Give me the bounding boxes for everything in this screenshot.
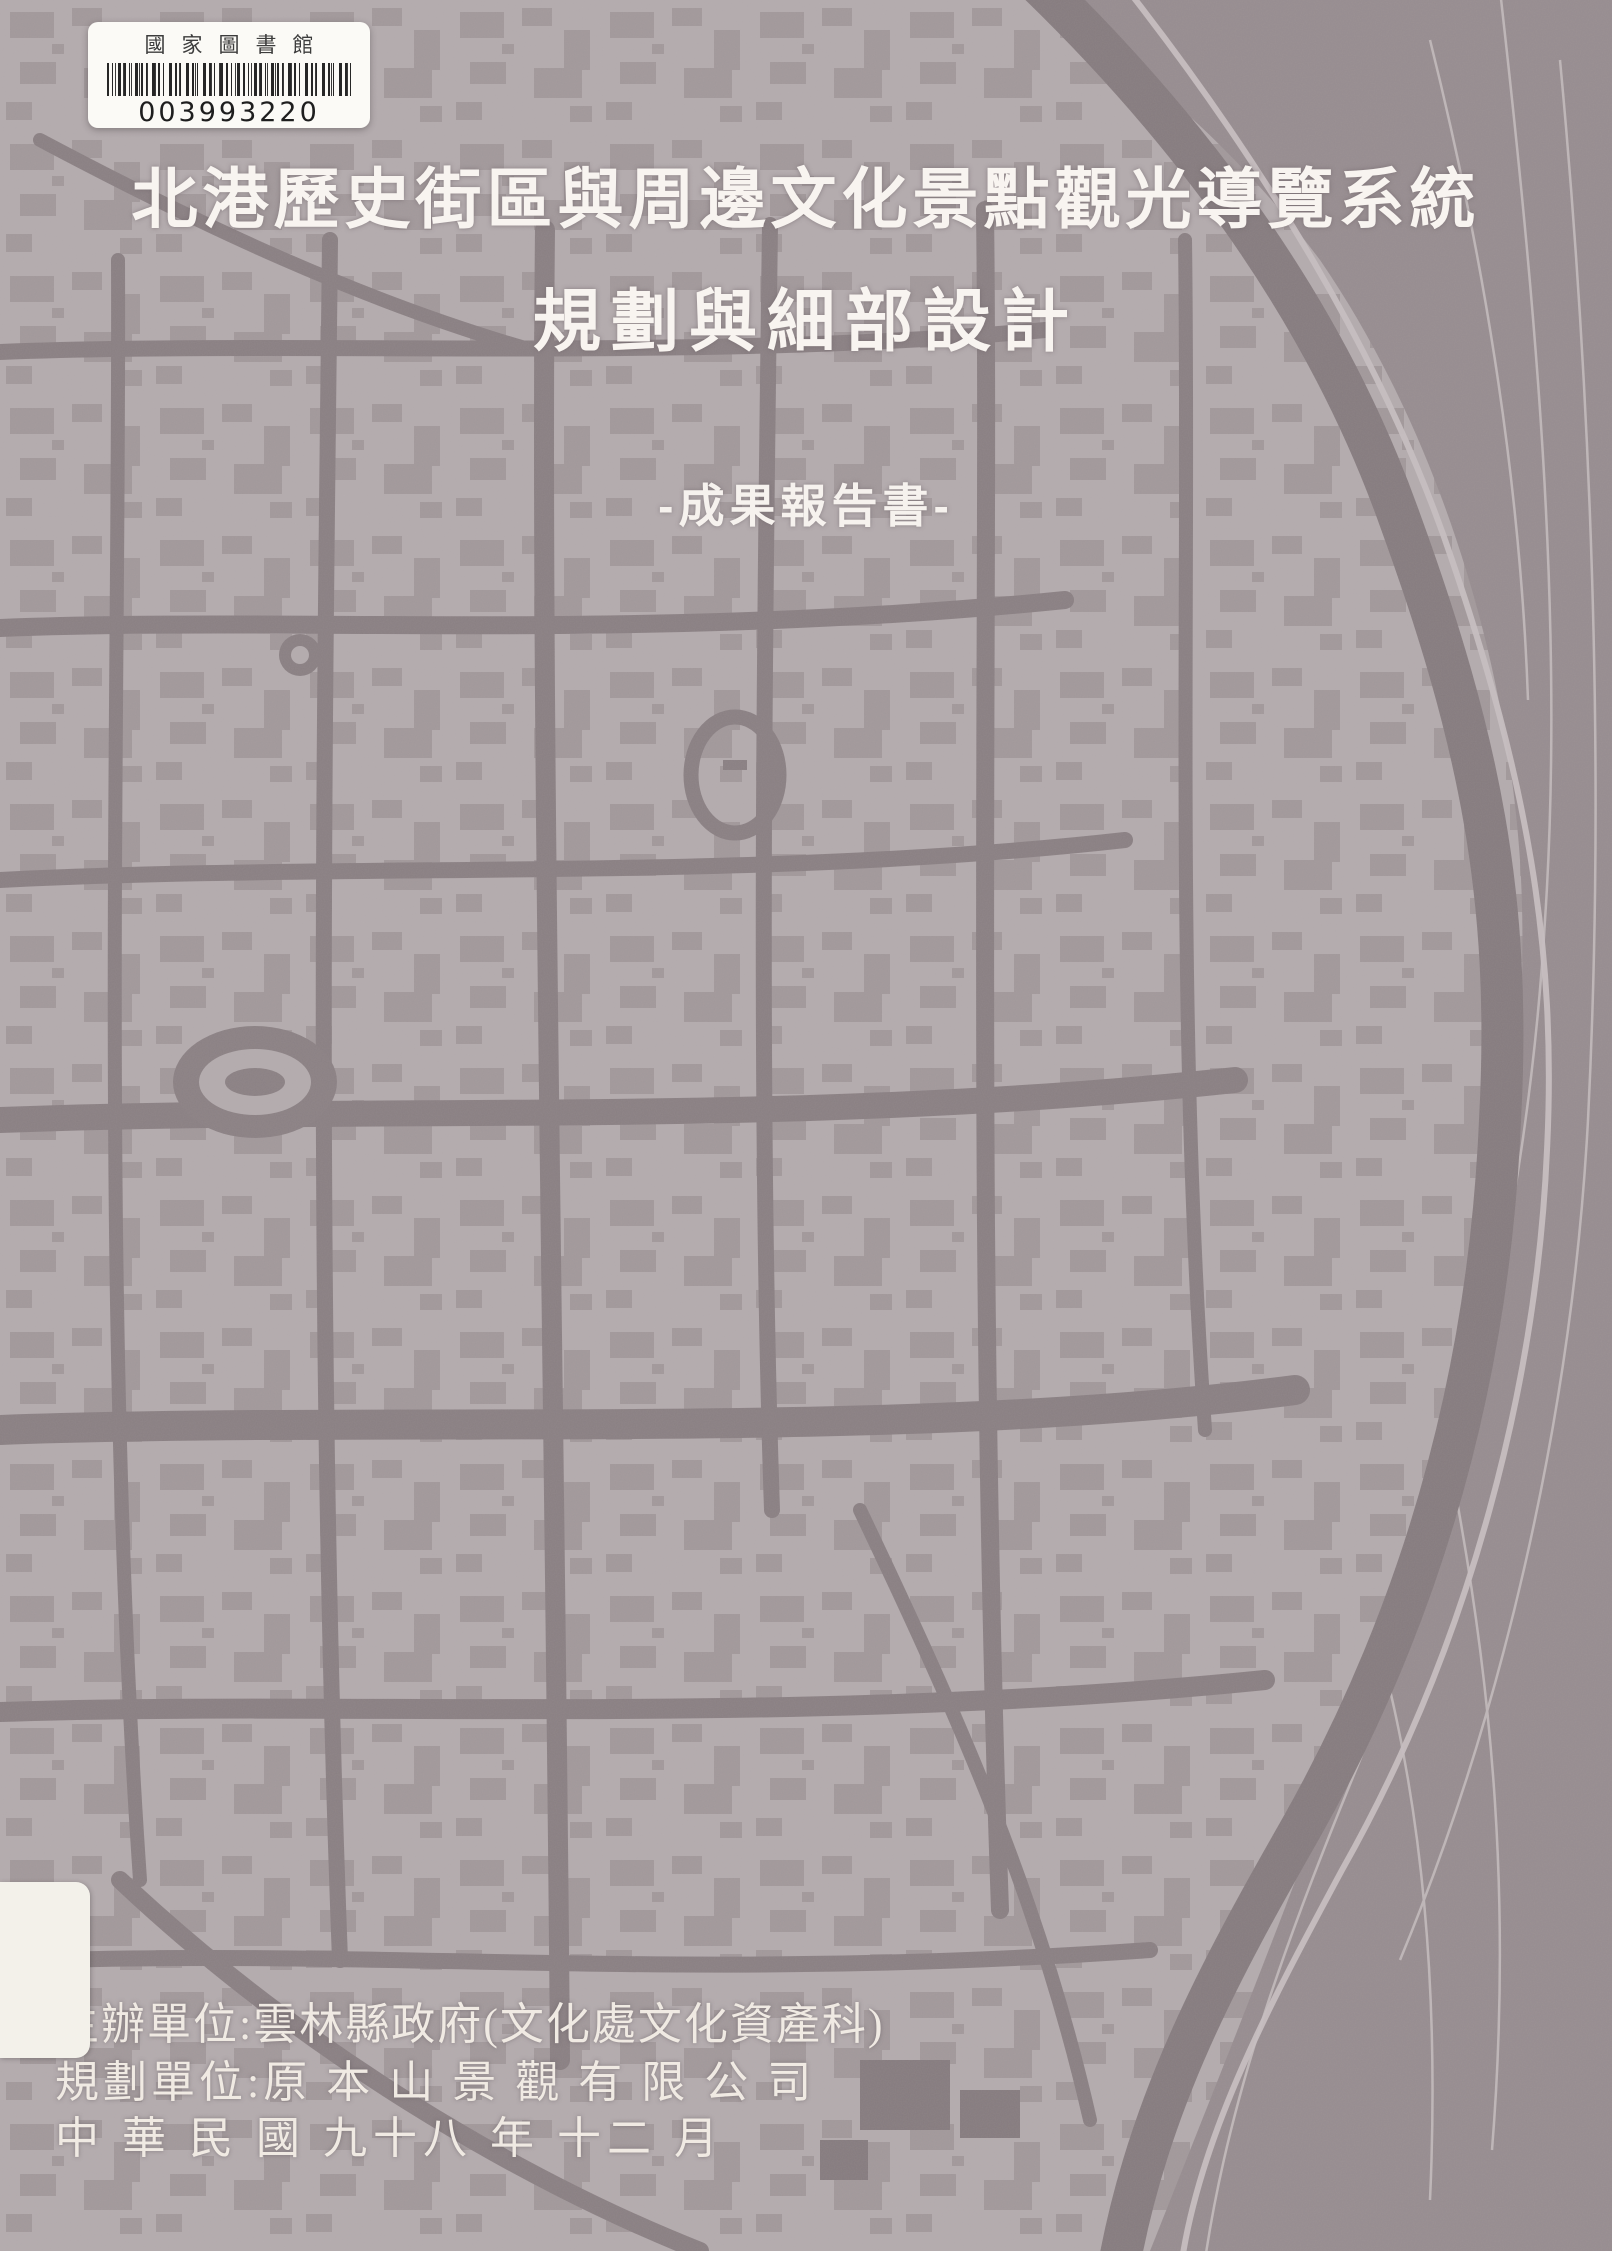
cover-title-line1: 北港歷史街區與周邊文化景點觀光導覽系統 bbox=[0, 146, 1612, 242]
cover-title-line2: 規劃與細部設計 bbox=[0, 266, 1612, 365]
footer-planner-line: 規劃單位:原 本 山 景 觀 有 限 公 司 bbox=[55, 2046, 815, 2110]
library-name: 國家圖書館 bbox=[145, 29, 330, 59]
library-barcode-label: 國家圖書館 003993220 bbox=[88, 22, 370, 128]
footer-organizer-line: 主辦單位:雲林縣政府(文化處文化資產科) bbox=[55, 1988, 885, 2052]
footer-date-line: 中 華 民 國 九十八 年 十二 月 bbox=[55, 2102, 724, 2166]
report-cover: 國家圖書館 003993220 北港歷史街區與周邊文化景點觀光導覽系統 規劃與細… bbox=[0, 0, 1612, 2251]
barcode-icon bbox=[107, 63, 351, 96]
spine-sticker bbox=[0, 1882, 90, 2058]
cover-title-block: 北港歷史街區與周邊文化景點觀光導覽系統 規劃與細部設計 bbox=[0, 146, 1612, 365]
barcode-number: 003993220 bbox=[138, 97, 320, 128]
cover-subtitle: -成果報告書- bbox=[0, 470, 1612, 536]
